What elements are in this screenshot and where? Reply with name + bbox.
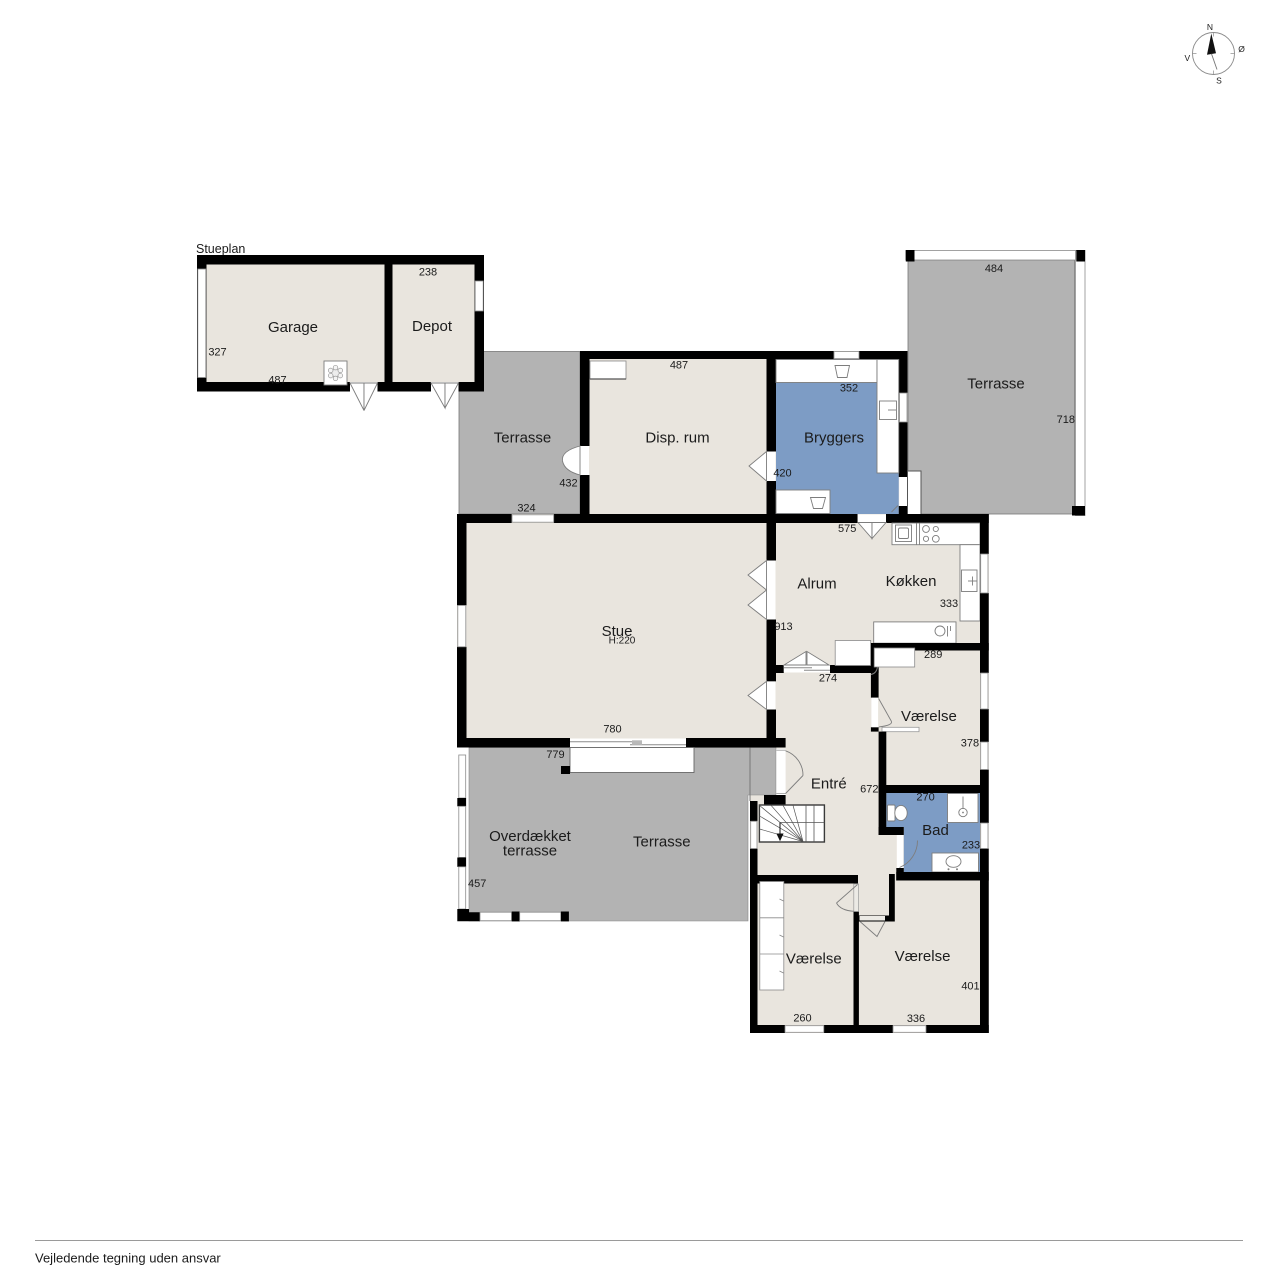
svg-text:238: 238 bbox=[419, 267, 437, 279]
svg-text:Terrasse: Terrasse bbox=[967, 375, 1025, 392]
svg-text:Depot: Depot bbox=[412, 318, 453, 335]
svg-text:333: 333 bbox=[940, 598, 958, 610]
svg-text:260: 260 bbox=[793, 1013, 811, 1025]
svg-text:779: 779 bbox=[546, 749, 564, 761]
svg-text:Køkken: Køkken bbox=[886, 573, 937, 590]
svg-text:Entré: Entré bbox=[811, 776, 847, 793]
svg-text:432: 432 bbox=[559, 478, 577, 490]
svg-text:H:220: H:220 bbox=[609, 636, 636, 647]
svg-text:274: 274 bbox=[819, 672, 837, 684]
svg-text:780: 780 bbox=[603, 724, 621, 736]
svg-text:327: 327 bbox=[208, 347, 226, 359]
svg-text:Værelse: Værelse bbox=[901, 708, 957, 725]
svg-text:913: 913 bbox=[774, 621, 792, 633]
svg-text:Bryggers: Bryggers bbox=[804, 430, 864, 447]
svg-text:Terrasse: Terrasse bbox=[633, 833, 691, 850]
svg-text:Terrasse: Terrasse bbox=[494, 430, 552, 447]
svg-text:233: 233 bbox=[962, 839, 980, 851]
svg-text:289: 289 bbox=[924, 649, 942, 661]
svg-text:Disp. rum: Disp. rum bbox=[645, 430, 709, 447]
svg-text:718: 718 bbox=[1057, 414, 1075, 426]
svg-text:Vejledende tegning uden ansvar: Vejledende tegning uden ansvar bbox=[35, 1251, 221, 1266]
svg-text:457: 457 bbox=[468, 878, 486, 890]
svg-text:S: S bbox=[1216, 75, 1222, 85]
svg-text:Bad: Bad bbox=[922, 822, 949, 839]
svg-text:378: 378 bbox=[961, 738, 979, 750]
svg-text:401: 401 bbox=[961, 980, 979, 992]
svg-text:352: 352 bbox=[840, 383, 858, 395]
svg-text:terrasse: terrasse bbox=[503, 843, 557, 860]
svg-text:420: 420 bbox=[773, 467, 791, 479]
svg-text:487: 487 bbox=[670, 360, 688, 372]
svg-text:336: 336 bbox=[907, 1013, 925, 1025]
svg-text:575: 575 bbox=[838, 523, 856, 535]
svg-text:Værelse: Værelse bbox=[895, 948, 951, 965]
svg-text:324: 324 bbox=[517, 503, 535, 515]
svg-text:Alrum: Alrum bbox=[797, 575, 836, 592]
svg-text:N: N bbox=[1207, 22, 1213, 32]
svg-text:Stueplan: Stueplan bbox=[196, 242, 245, 256]
svg-text:Ø: Ø bbox=[1238, 44, 1245, 54]
svg-text:484: 484 bbox=[985, 263, 1003, 275]
svg-text:487: 487 bbox=[268, 375, 286, 387]
svg-text:Værelse: Værelse bbox=[786, 951, 842, 968]
svg-text:672: 672 bbox=[860, 784, 878, 796]
svg-text:Garage: Garage bbox=[268, 319, 318, 336]
svg-text:V: V bbox=[1184, 53, 1190, 63]
svg-text:270: 270 bbox=[916, 792, 934, 804]
